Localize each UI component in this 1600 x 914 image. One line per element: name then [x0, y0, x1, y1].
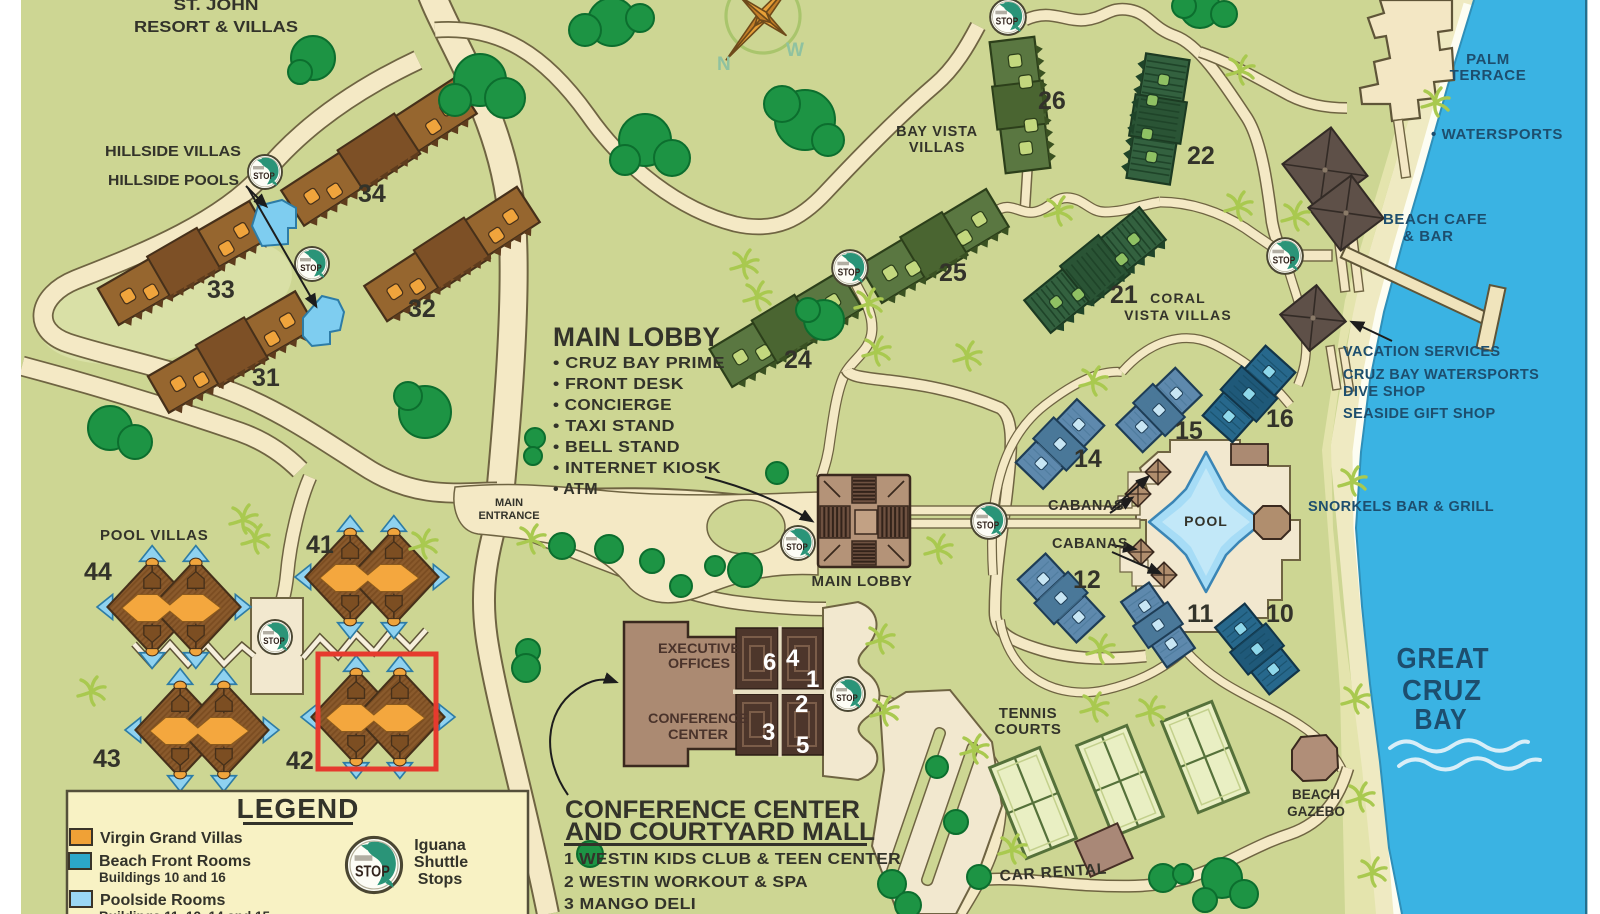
svg-text:33: 33 — [207, 276, 235, 304]
svg-text:RESORT & VILLAS: RESORT & VILLAS — [134, 19, 298, 36]
svg-text:42: 42 — [286, 747, 314, 775]
svg-text:BAY: BAY — [1415, 704, 1468, 736]
svg-text:W: W — [786, 40, 804, 61]
svg-text:POOL: POOL — [1184, 513, 1228, 529]
svg-text:16: 16 — [1266, 405, 1294, 433]
svg-text:Buildings 10 and 16: Buildings 10 and 16 — [99, 870, 226, 885]
svg-text:BEACH: BEACH — [1292, 787, 1340, 802]
svg-text:Shuttle: Shuttle — [414, 854, 468, 871]
svg-text:TERRACE: TERRACE — [1450, 67, 1527, 84]
svg-text:AND COURTYARD MALL: AND COURTYARD MALL — [565, 818, 875, 846]
svg-text:Buildings 11, 12, 14 and 15: Buildings 11, 12, 14 and 15 — [99, 909, 271, 914]
svg-text:14: 14 — [1074, 445, 1102, 473]
svg-text:BAY VISTA: BAY VISTA — [896, 124, 978, 140]
svg-text:32: 32 — [408, 295, 436, 323]
svg-text:MAIN: MAIN — [495, 497, 523, 509]
svg-text:DIVE SHOP: DIVE SHOP — [1343, 384, 1426, 400]
svg-text:PALM: PALM — [1466, 51, 1510, 68]
svg-text:CORAL: CORAL — [1150, 290, 1206, 306]
svg-text:12: 12 — [1073, 566, 1101, 594]
svg-text:MAIN LOBBY: MAIN LOBBY — [812, 573, 913, 590]
svg-text:1 WESTIN KIDS CLUB & TEEN CEN: 1 WESTIN KIDS CLUB & TEEN CENTER — [564, 851, 901, 868]
svg-text:43: 43 — [93, 745, 121, 773]
svg-text:• ATM: • ATM — [553, 481, 598, 498]
svg-text:OFFICES: OFFICES — [668, 656, 730, 671]
svg-text:CABANAS: CABANAS — [1048, 498, 1124, 514]
svg-text:ST. JOHN: ST. JOHN — [174, 0, 259, 14]
svg-text:POOL VILLAS: POOL VILLAS — [100, 527, 209, 544]
svg-text:• INTERNET KIOSK: • INTERNET KIOSK — [553, 460, 721, 477]
svg-text:3: 3 — [762, 719, 775, 746]
svg-text:26: 26 — [1038, 87, 1066, 115]
svg-text:CRUZ BAY WATERSPORTS: CRUZ BAY WATERSPORTS — [1343, 367, 1539, 383]
svg-text:GREAT: GREAT — [1397, 643, 1490, 675]
svg-text:MAIN LOBBY: MAIN LOBBY — [553, 322, 720, 352]
svg-text:VISTA VILLAS: VISTA VILLAS — [1124, 307, 1232, 323]
svg-text:• BELL STAND: • BELL STAND — [553, 439, 680, 456]
svg-text:3 MANGO DELI: 3 MANGO DELI — [564, 896, 696, 913]
svg-text:• CONCIERGE: • CONCIERGE — [553, 397, 672, 414]
svg-text:24: 24 — [784, 346, 812, 374]
svg-text:2: 2 — [795, 691, 808, 718]
svg-text:CENTER: CENTER — [668, 727, 728, 742]
svg-text:1: 1 — [806, 666, 819, 693]
svg-text:SEASIDE GIFT SHOP: SEASIDE GIFT SHOP — [1343, 406, 1496, 422]
svg-text:2 WESTIN WORKOUT & SPA: 2 WESTIN WORKOUT & SPA — [564, 874, 808, 891]
svg-text:41: 41 — [306, 531, 334, 559]
svg-text:GAZEBO: GAZEBO — [1287, 804, 1345, 819]
svg-text:ENTRANCE: ENTRANCE — [478, 510, 539, 522]
svg-text:15: 15 — [1175, 417, 1203, 445]
svg-text:• WATERSPORTS: • WATERSPORTS — [1431, 126, 1563, 143]
svg-text:4: 4 — [786, 645, 800, 672]
svg-text:EXECUTIVE: EXECUTIVE — [658, 641, 740, 656]
svg-text:LEGEND: LEGEND — [237, 793, 360, 824]
svg-text:6: 6 — [763, 649, 776, 676]
svg-text:& BAR: & BAR — [1403, 228, 1454, 245]
svg-text:5: 5 — [796, 732, 809, 759]
svg-text:Iguana: Iguana — [414, 837, 466, 854]
svg-text:VACATION SERVICES: VACATION SERVICES — [1343, 344, 1500, 360]
svg-text:Virgin Grand Villas: Virgin Grand Villas — [100, 830, 243, 847]
svg-text:44: 44 — [84, 558, 112, 586]
svg-text:Beach Front Rooms: Beach Front Rooms — [99, 853, 251, 870]
svg-text:CONFERENCE: CONFERENCE — [648, 711, 748, 726]
svg-text:Poolside Rooms: Poolside Rooms — [100, 892, 225, 909]
svg-text:31: 31 — [252, 364, 280, 392]
svg-text:• TAXI STAND: • TAXI STAND — [553, 418, 675, 435]
svg-text:HILLSIDE VILLAS: HILLSIDE VILLAS — [105, 144, 241, 160]
svg-text:BEACH CAFE: BEACH CAFE — [1383, 211, 1487, 228]
svg-text:SNORKELS BAR & GRILL: SNORKELS BAR & GRILL — [1308, 499, 1494, 515]
svg-text:22: 22 — [1187, 142, 1215, 170]
svg-text:• FRONT DESK: • FRONT DESK — [553, 376, 684, 393]
svg-text:25: 25 — [939, 259, 967, 287]
svg-text:COURTS: COURTS — [995, 721, 1062, 738]
svg-text:TENNIS: TENNIS — [999, 705, 1058, 722]
svg-text:Stops: Stops — [418, 871, 463, 888]
svg-text:HILLSIDE POOLS: HILLSIDE POOLS — [108, 173, 239, 189]
svg-text:• CRUZ BAY PRIME: • CRUZ BAY PRIME — [553, 355, 725, 372]
svg-text:10: 10 — [1266, 600, 1294, 628]
svg-text:VILLAS: VILLAS — [909, 140, 965, 156]
svg-text:CRUZ: CRUZ — [1402, 675, 1482, 707]
svg-text:N: N — [717, 54, 731, 75]
svg-text:34: 34 — [358, 180, 386, 208]
svg-text:11: 11 — [1187, 600, 1214, 628]
svg-text:CABANAS: CABANAS — [1052, 536, 1128, 552]
svg-text:21: 21 — [1110, 281, 1138, 309]
